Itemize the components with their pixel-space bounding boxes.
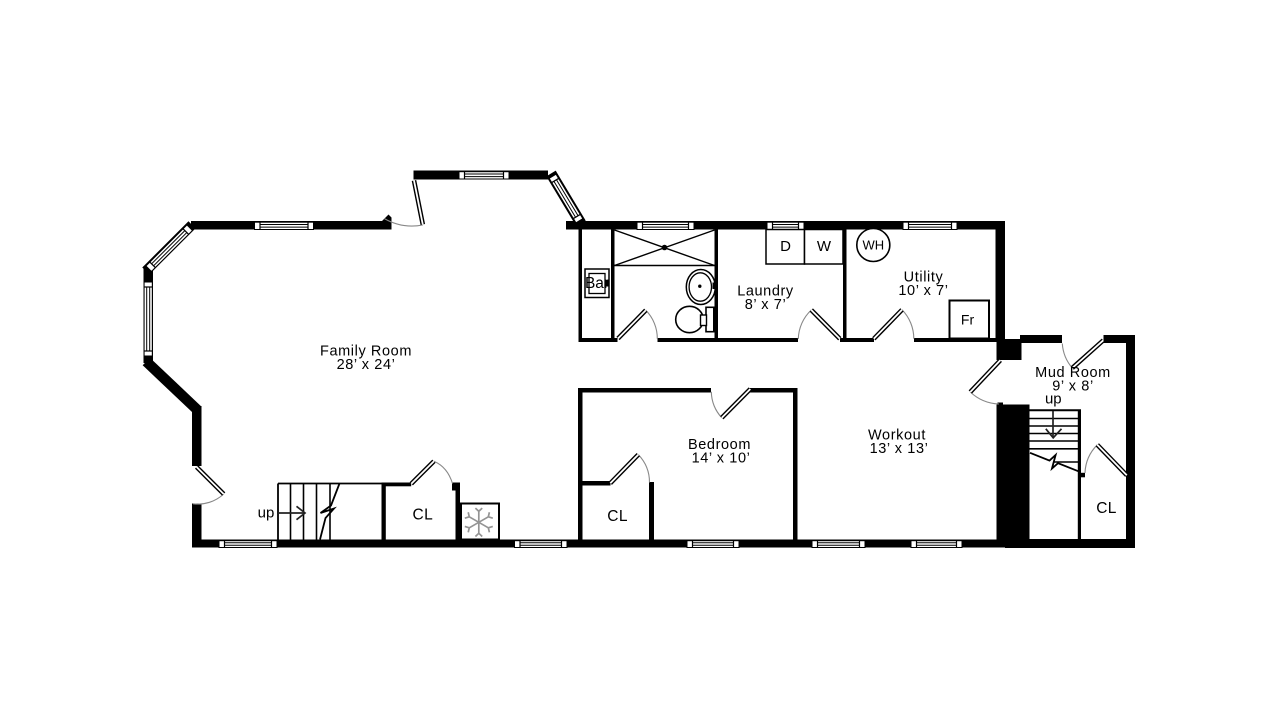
svg-text:Bar: Bar <box>585 275 609 292</box>
svg-text:Fr: Fr <box>961 312 975 328</box>
svg-text:10’ x 7’: 10’ x 7’ <box>898 283 948 299</box>
svg-text:8’ x 7’: 8’ x 7’ <box>745 297 787 313</box>
svg-text:up: up <box>258 505 275 522</box>
svg-text:W: W <box>817 238 832 255</box>
svg-text:28’ x 24’: 28’ x 24’ <box>337 357 396 373</box>
svg-text:14’ x 10’: 14’ x 10’ <box>692 451 751 467</box>
svg-text:D: D <box>780 238 791 255</box>
svg-text:WH: WH <box>862 238 884 253</box>
svg-text:CL: CL <box>412 507 433 524</box>
svg-text:9’ x 8’: 9’ x 8’ <box>1052 379 1094 395</box>
svg-text:13’ x 13’: 13’ x 13’ <box>870 441 929 457</box>
svg-text:CL: CL <box>607 508 628 525</box>
svg-text:CL: CL <box>1096 500 1117 517</box>
